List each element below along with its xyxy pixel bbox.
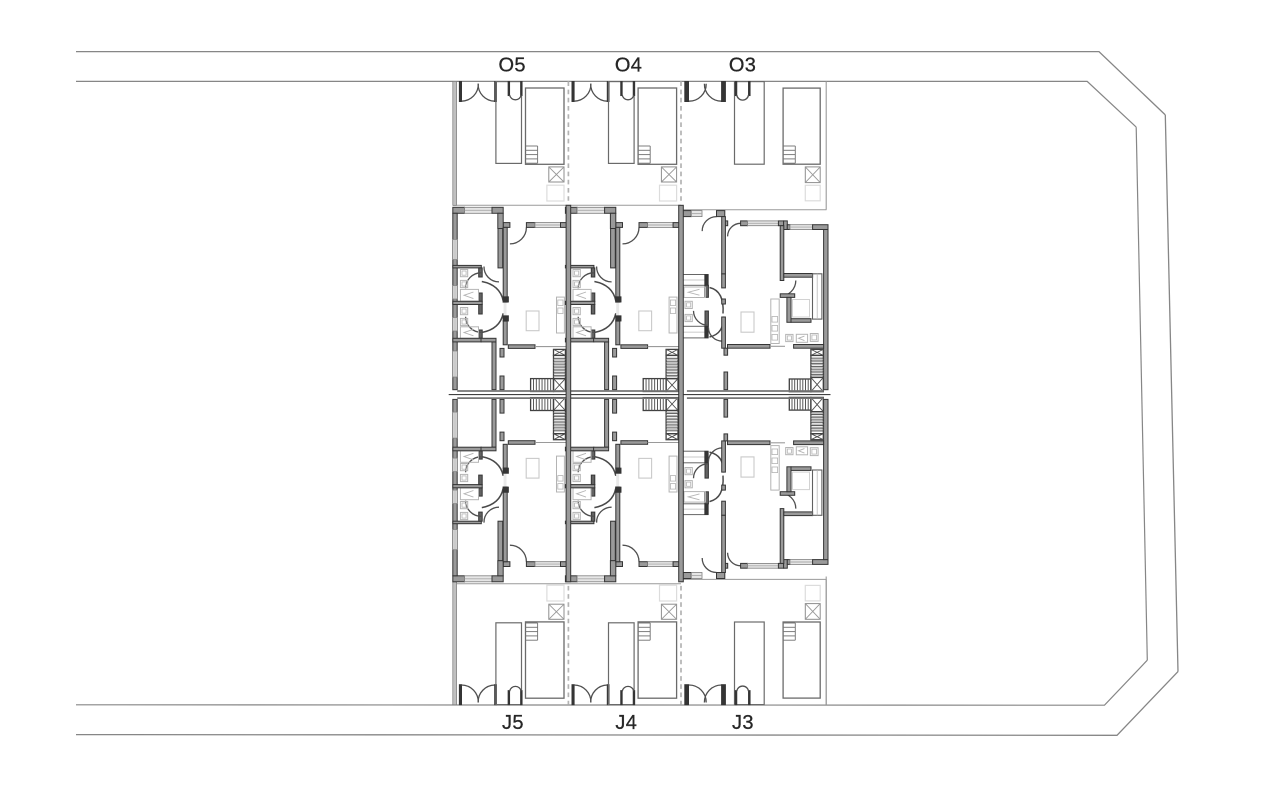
svg-text:J5: J5 [502,712,524,734]
svg-text:O5: O5 [498,55,525,77]
svg-text:J4: J4 [615,712,637,734]
svg-text:O4: O4 [615,55,642,77]
svg-text:O3: O3 [729,55,756,77]
svg-text:J3: J3 [732,712,754,734]
